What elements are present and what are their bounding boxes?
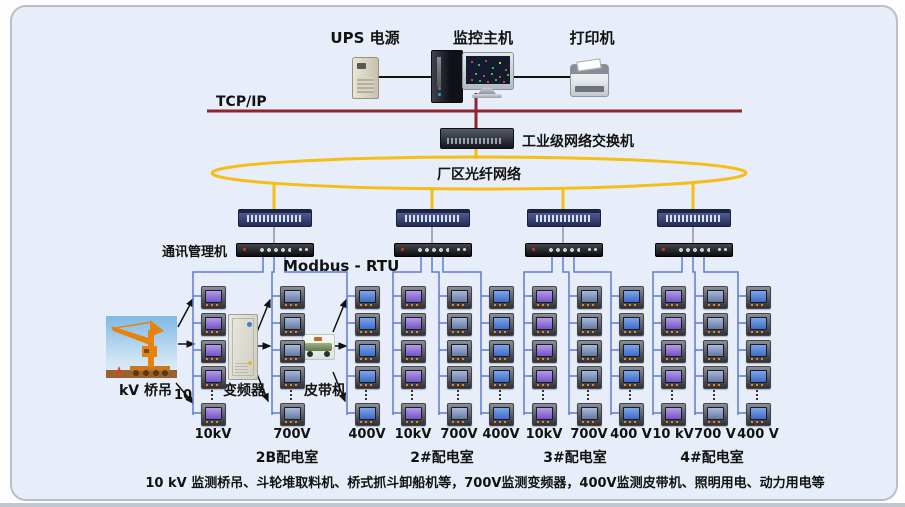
power-meter — [577, 403, 602, 426]
power-meter — [489, 403, 514, 426]
meter-screen — [536, 290, 553, 303]
meter-keys — [206, 421, 221, 423]
power-meter — [355, 286, 380, 309]
printer-device — [570, 64, 609, 97]
belt-wheel — [307, 351, 313, 357]
meter-screen — [284, 407, 301, 420]
industrial-switch — [440, 128, 514, 149]
voltage-label: 10kV — [188, 427, 238, 442]
meter-keys — [360, 384, 375, 386]
meter-keys — [452, 384, 467, 386]
power-meter — [489, 313, 514, 336]
meter-keys — [708, 421, 723, 423]
meter-screen — [359, 290, 376, 303]
room-label: 3#配电室 — [515, 447, 635, 467]
meter-keys — [708, 331, 723, 333]
power-meter — [280, 403, 305, 426]
meter-screen — [451, 290, 468, 303]
meter-screen — [707, 317, 724, 330]
more-meters-ellipsis — [365, 390, 367, 392]
meter-keys — [406, 358, 421, 360]
meter-screen — [536, 317, 553, 330]
meter-keys — [666, 304, 681, 306]
meter-screen — [665, 407, 682, 420]
meter-keys — [285, 384, 300, 386]
monitor-base — [472, 94, 502, 98]
power-meter — [703, 340, 728, 363]
meter-keys — [708, 358, 723, 360]
power-meter — [447, 340, 472, 363]
power-meter — [577, 286, 602, 309]
meter-screen — [493, 370, 510, 383]
power-meter — [746, 366, 771, 389]
meter-keys — [582, 304, 597, 306]
power-meter — [401, 366, 426, 389]
belt-label: 皮带机 — [304, 380, 346, 400]
power-meter — [577, 340, 602, 363]
power-meter — [201, 403, 226, 426]
diagram-canvas: UPS 电源 监控主机 打印机 TCP/IP 工业级网络交换机 厂区光纤网络 通… — [0, 0, 905, 507]
meter-screen — [284, 290, 301, 303]
meter-screen — [405, 407, 422, 420]
belt-wheel — [324, 351, 330, 357]
meter-keys — [406, 331, 421, 333]
meter-screen — [581, 344, 598, 357]
meter-keys — [452, 331, 467, 333]
meter-screen — [493, 344, 510, 357]
meter-keys — [666, 358, 681, 360]
meter-screen — [750, 344, 767, 357]
belt-machine-image — [302, 334, 335, 360]
crane-image — [106, 316, 177, 378]
crane-label: kV 桥吊 — [119, 380, 172, 400]
voltage-label: 10kV — [519, 427, 569, 442]
host-label: 监控主机 — [453, 27, 513, 48]
meter-screen — [405, 370, 422, 383]
meter-screen — [750, 317, 767, 330]
power-meter — [401, 286, 426, 309]
network-switch — [657, 209, 731, 227]
meter-screen — [359, 407, 376, 420]
meter-keys — [751, 331, 766, 333]
power-meter — [401, 313, 426, 336]
power-meter — [619, 340, 644, 363]
meter-keys — [452, 304, 467, 306]
meter-keys — [360, 331, 375, 333]
more-meters-ellipsis — [499, 390, 501, 392]
meter-screen — [665, 317, 682, 330]
meter-screen — [451, 370, 468, 383]
meter-keys — [406, 421, 421, 423]
power-meter — [532, 403, 557, 426]
comm-manager-label: 通讯管理机 — [162, 241, 227, 260]
power-meter — [703, 313, 728, 336]
power-meter — [746, 340, 771, 363]
meter-screen — [205, 370, 222, 383]
meter-keys — [624, 304, 639, 306]
power-meter — [619, 403, 644, 426]
more-meters-ellipsis — [542, 390, 544, 392]
printer-label: 打印机 — [569, 27, 614, 48]
more-meters-ellipsis — [713, 390, 715, 392]
meter-keys — [360, 304, 375, 306]
meter-screen — [205, 290, 222, 303]
meter-keys — [285, 358, 300, 360]
meter-screen — [205, 407, 222, 420]
meter-keys — [452, 358, 467, 360]
meter-keys — [708, 384, 723, 386]
power-meter — [201, 340, 226, 363]
power-meter — [532, 340, 557, 363]
meter-screen — [536, 407, 553, 420]
meter-screen — [707, 370, 724, 383]
converter-label: 变频器 — [223, 380, 265, 400]
meter-screen — [451, 317, 468, 330]
room-label: 2#配电室 — [382, 447, 502, 467]
industrial-switch-label: 工业级网络交换机 — [522, 131, 634, 151]
meter-screen — [581, 317, 598, 330]
tcpip-label: TCP/IP — [216, 94, 267, 110]
meter-screen — [581, 407, 598, 420]
power-meter — [355, 403, 380, 426]
meter-keys — [360, 358, 375, 360]
power-meter — [619, 313, 644, 336]
crane-label-prefix: 10 — [174, 388, 192, 403]
meter-screen — [665, 370, 682, 383]
meter-screen — [359, 344, 376, 357]
caption: 10 kV 监测桥吊、斗轮堆取料机、桥式抓斗卸船机等，700V监测变频器，400… — [145, 472, 824, 491]
meter-screen — [493, 407, 510, 420]
converter-indicator — [248, 361, 252, 365]
power-meter — [355, 366, 380, 389]
more-meters-ellipsis — [457, 390, 459, 392]
meter-keys — [582, 358, 597, 360]
meter-screen — [623, 370, 640, 383]
belt-motor — [314, 337, 322, 341]
meter-keys — [494, 384, 509, 386]
power-meter — [532, 286, 557, 309]
meter-screen — [205, 317, 222, 330]
meter-screen — [359, 317, 376, 330]
meter-keys — [582, 331, 597, 333]
power-meter — [489, 286, 514, 309]
power-meter — [280, 313, 305, 336]
meter-keys — [624, 421, 639, 423]
power-meter — [532, 366, 557, 389]
more-meters-ellipsis — [411, 390, 413, 392]
power-meter — [746, 403, 771, 426]
meter-keys — [494, 358, 509, 360]
meter-keys — [285, 421, 300, 423]
network-switch — [527, 209, 601, 227]
power-meter — [489, 340, 514, 363]
network-switch — [238, 209, 312, 227]
meter-keys — [285, 331, 300, 333]
meter-keys — [582, 384, 597, 386]
meter-keys — [624, 358, 639, 360]
power-meter — [280, 340, 305, 363]
meter-screen — [205, 344, 222, 357]
power-meter — [280, 366, 305, 389]
meter-keys — [494, 421, 509, 423]
meter-keys — [751, 421, 766, 423]
meter-screen — [536, 344, 553, 357]
power-meter — [401, 403, 426, 426]
power-meter — [355, 340, 380, 363]
meter-keys — [666, 384, 681, 386]
meter-keys — [494, 331, 509, 333]
voltage-label: 10kV — [388, 427, 438, 442]
meter-screen — [623, 317, 640, 330]
power-meter — [703, 403, 728, 426]
meter-keys — [537, 331, 552, 333]
voltage-label: 700V — [267, 427, 317, 442]
power-meter — [447, 403, 472, 426]
scada-screen — [466, 56, 510, 84]
power-meter — [447, 366, 472, 389]
power-meter — [661, 366, 686, 389]
meter-keys — [285, 304, 300, 306]
comm-manager-device — [394, 243, 472, 257]
more-meters-ellipsis — [290, 390, 292, 392]
meter-screen — [284, 317, 301, 330]
power-meter — [280, 286, 305, 309]
meter-keys — [624, 384, 639, 386]
meter-keys — [406, 304, 421, 306]
comm-manager-device — [655, 243, 733, 257]
more-meters-ellipsis — [671, 390, 673, 392]
meter-keys — [708, 304, 723, 306]
belt-body — [305, 343, 332, 351]
meter-screen — [707, 290, 724, 303]
meter-screen — [581, 370, 598, 383]
meter-keys — [537, 421, 552, 423]
meter-keys — [206, 358, 221, 360]
meter-keys — [206, 304, 221, 306]
meter-screen — [359, 370, 376, 383]
network-switch — [396, 209, 470, 227]
meter-screen — [665, 344, 682, 357]
meter-screen — [623, 344, 640, 357]
meter-keys — [624, 331, 639, 333]
meter-screen — [536, 370, 553, 383]
room-label: 2B配电室 — [227, 447, 347, 467]
power-meter — [577, 366, 602, 389]
power-meter — [201, 286, 226, 309]
meter-keys — [537, 358, 552, 360]
power-meter — [661, 313, 686, 336]
power-meter — [201, 366, 226, 389]
power-meter — [661, 340, 686, 363]
meter-keys — [206, 384, 221, 386]
power-meter — [703, 286, 728, 309]
meter-keys — [537, 384, 552, 386]
host-tower — [431, 50, 463, 103]
power-meter — [661, 403, 686, 426]
meter-keys — [360, 421, 375, 423]
power-meter — [703, 366, 728, 389]
meter-screen — [623, 407, 640, 420]
converter-vent — [235, 363, 248, 373]
more-meters-ellipsis — [629, 390, 631, 392]
ups-device — [352, 57, 379, 99]
power-meter — [619, 366, 644, 389]
meter-screen — [284, 344, 301, 357]
power-meter — [201, 313, 226, 336]
comm-manager-device — [525, 243, 603, 257]
meter-keys — [406, 384, 421, 386]
meter-keys — [751, 358, 766, 360]
meter-screen — [623, 290, 640, 303]
meter-screen — [405, 290, 422, 303]
meter-keys — [206, 331, 221, 333]
more-meters-ellipsis — [587, 390, 589, 392]
meter-keys — [582, 421, 597, 423]
meter-screen — [451, 407, 468, 420]
meter-screen — [750, 370, 767, 383]
meter-keys — [751, 304, 766, 306]
more-meters-ellipsis — [211, 390, 213, 392]
meter-keys — [751, 384, 766, 386]
meter-screen — [665, 290, 682, 303]
screen-pixels — [471, 61, 473, 63]
fiber-ring-label: 厂区光纤网络 — [437, 164, 521, 184]
meter-screen — [405, 317, 422, 330]
meter-screen — [581, 290, 598, 303]
meter-screen — [493, 317, 510, 330]
meter-screen — [750, 290, 767, 303]
frequency-converter-image — [228, 314, 258, 380]
power-meter — [447, 286, 472, 309]
more-meters-ellipsis — [756, 390, 758, 392]
power-meter — [532, 313, 557, 336]
meter-screen — [405, 344, 422, 357]
voltage-label: 400 V — [733, 427, 783, 442]
meter-screen — [284, 370, 301, 383]
meter-screen — [451, 344, 468, 357]
meter-keys — [537, 304, 552, 306]
meter-screen — [750, 407, 767, 420]
power-meter — [355, 313, 380, 336]
host-monitor — [462, 52, 514, 90]
meter-keys — [666, 421, 681, 423]
power-meter — [746, 313, 771, 336]
room-label: 4#配电室 — [652, 447, 772, 467]
power-meter — [619, 286, 644, 309]
voltage-label: 400V — [342, 427, 392, 442]
modbus-label: Modbus - RTU — [283, 257, 399, 275]
power-meter — [577, 313, 602, 336]
power-meter — [401, 340, 426, 363]
window-bottom-edge — [0, 503, 905, 507]
power-meter — [447, 313, 472, 336]
ups-label: UPS 电源 — [330, 27, 399, 48]
meter-screen — [493, 290, 510, 303]
meter-screen — [707, 344, 724, 357]
meter-keys — [452, 421, 467, 423]
meter-screen — [707, 407, 724, 420]
power-meter — [489, 366, 514, 389]
power-meter — [746, 286, 771, 309]
meter-keys — [666, 331, 681, 333]
meter-keys — [494, 304, 509, 306]
power-meter — [661, 286, 686, 309]
comm-manager-device — [236, 243, 314, 257]
